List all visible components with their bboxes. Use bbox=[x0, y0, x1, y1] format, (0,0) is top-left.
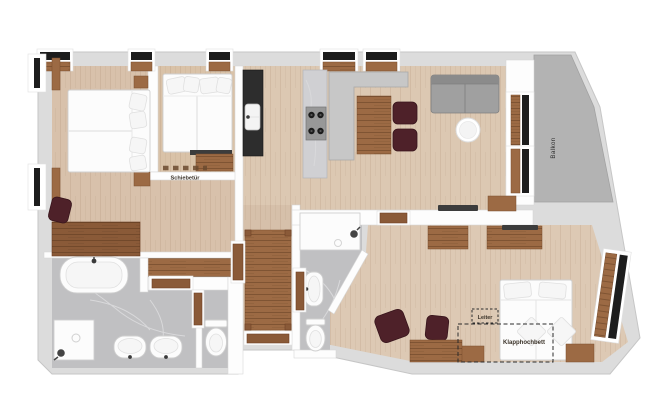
door-icon bbox=[192, 290, 204, 328]
dining-chair bbox=[393, 129, 417, 151]
sink-icon bbox=[150, 336, 182, 359]
door-icon entrance-door bbox=[244, 331, 292, 345]
balcony-door-icon bbox=[506, 146, 534, 196]
dining-chair bbox=[393, 102, 417, 124]
nightstand bbox=[134, 172, 150, 186]
kitchen-sink-icon bbox=[245, 104, 260, 130]
shower-icon bbox=[54, 320, 94, 360]
coffee-table bbox=[456, 118, 480, 142]
bench bbox=[460, 346, 484, 362]
sofa bbox=[431, 75, 499, 113]
bench bbox=[566, 344, 594, 362]
window-icon bbox=[28, 54, 60, 92]
toilet-icon bbox=[205, 320, 227, 356]
hall-closet bbox=[245, 230, 291, 330]
stove-icon bbox=[306, 107, 326, 140]
sideboard bbox=[488, 196, 516, 211]
sink-icon bbox=[305, 272, 323, 306]
sliding-door-label: Schiebetür bbox=[171, 176, 201, 182]
sink-icon bbox=[114, 336, 146, 359]
tv bbox=[438, 205, 478, 211]
nightstand bbox=[134, 76, 148, 88]
window-icon bbox=[128, 49, 155, 71]
desk-chair bbox=[425, 315, 449, 341]
floor-plan: Balkon bbox=[0, 0, 650, 420]
bathtub-icon bbox=[60, 257, 128, 293]
ladder-label: Leiter bbox=[478, 315, 494, 321]
door-icon bbox=[231, 241, 245, 283]
balcony-door-icon bbox=[506, 92, 534, 148]
door-icon bbox=[377, 211, 410, 225]
door-icon bbox=[293, 268, 306, 312]
floor-plan-canvas: Balkon bbox=[0, 0, 650, 420]
door-icon bbox=[149, 276, 193, 290]
tv bbox=[502, 225, 538, 230]
toilet-icon bbox=[306, 319, 325, 351]
double-bed bbox=[68, 90, 150, 172]
window-icon bbox=[320, 49, 358, 71]
window-icon bbox=[363, 49, 400, 71]
balcony-label: Balkon bbox=[550, 137, 557, 158]
fold-down-bed-label: Klapphochbett bbox=[503, 340, 545, 346]
fold-down-bed bbox=[500, 280, 576, 360]
shower-area bbox=[300, 213, 360, 250]
double-bed bbox=[163, 74, 232, 152]
window-icon bbox=[206, 49, 233, 71]
balcony-doors bbox=[506, 92, 534, 196]
